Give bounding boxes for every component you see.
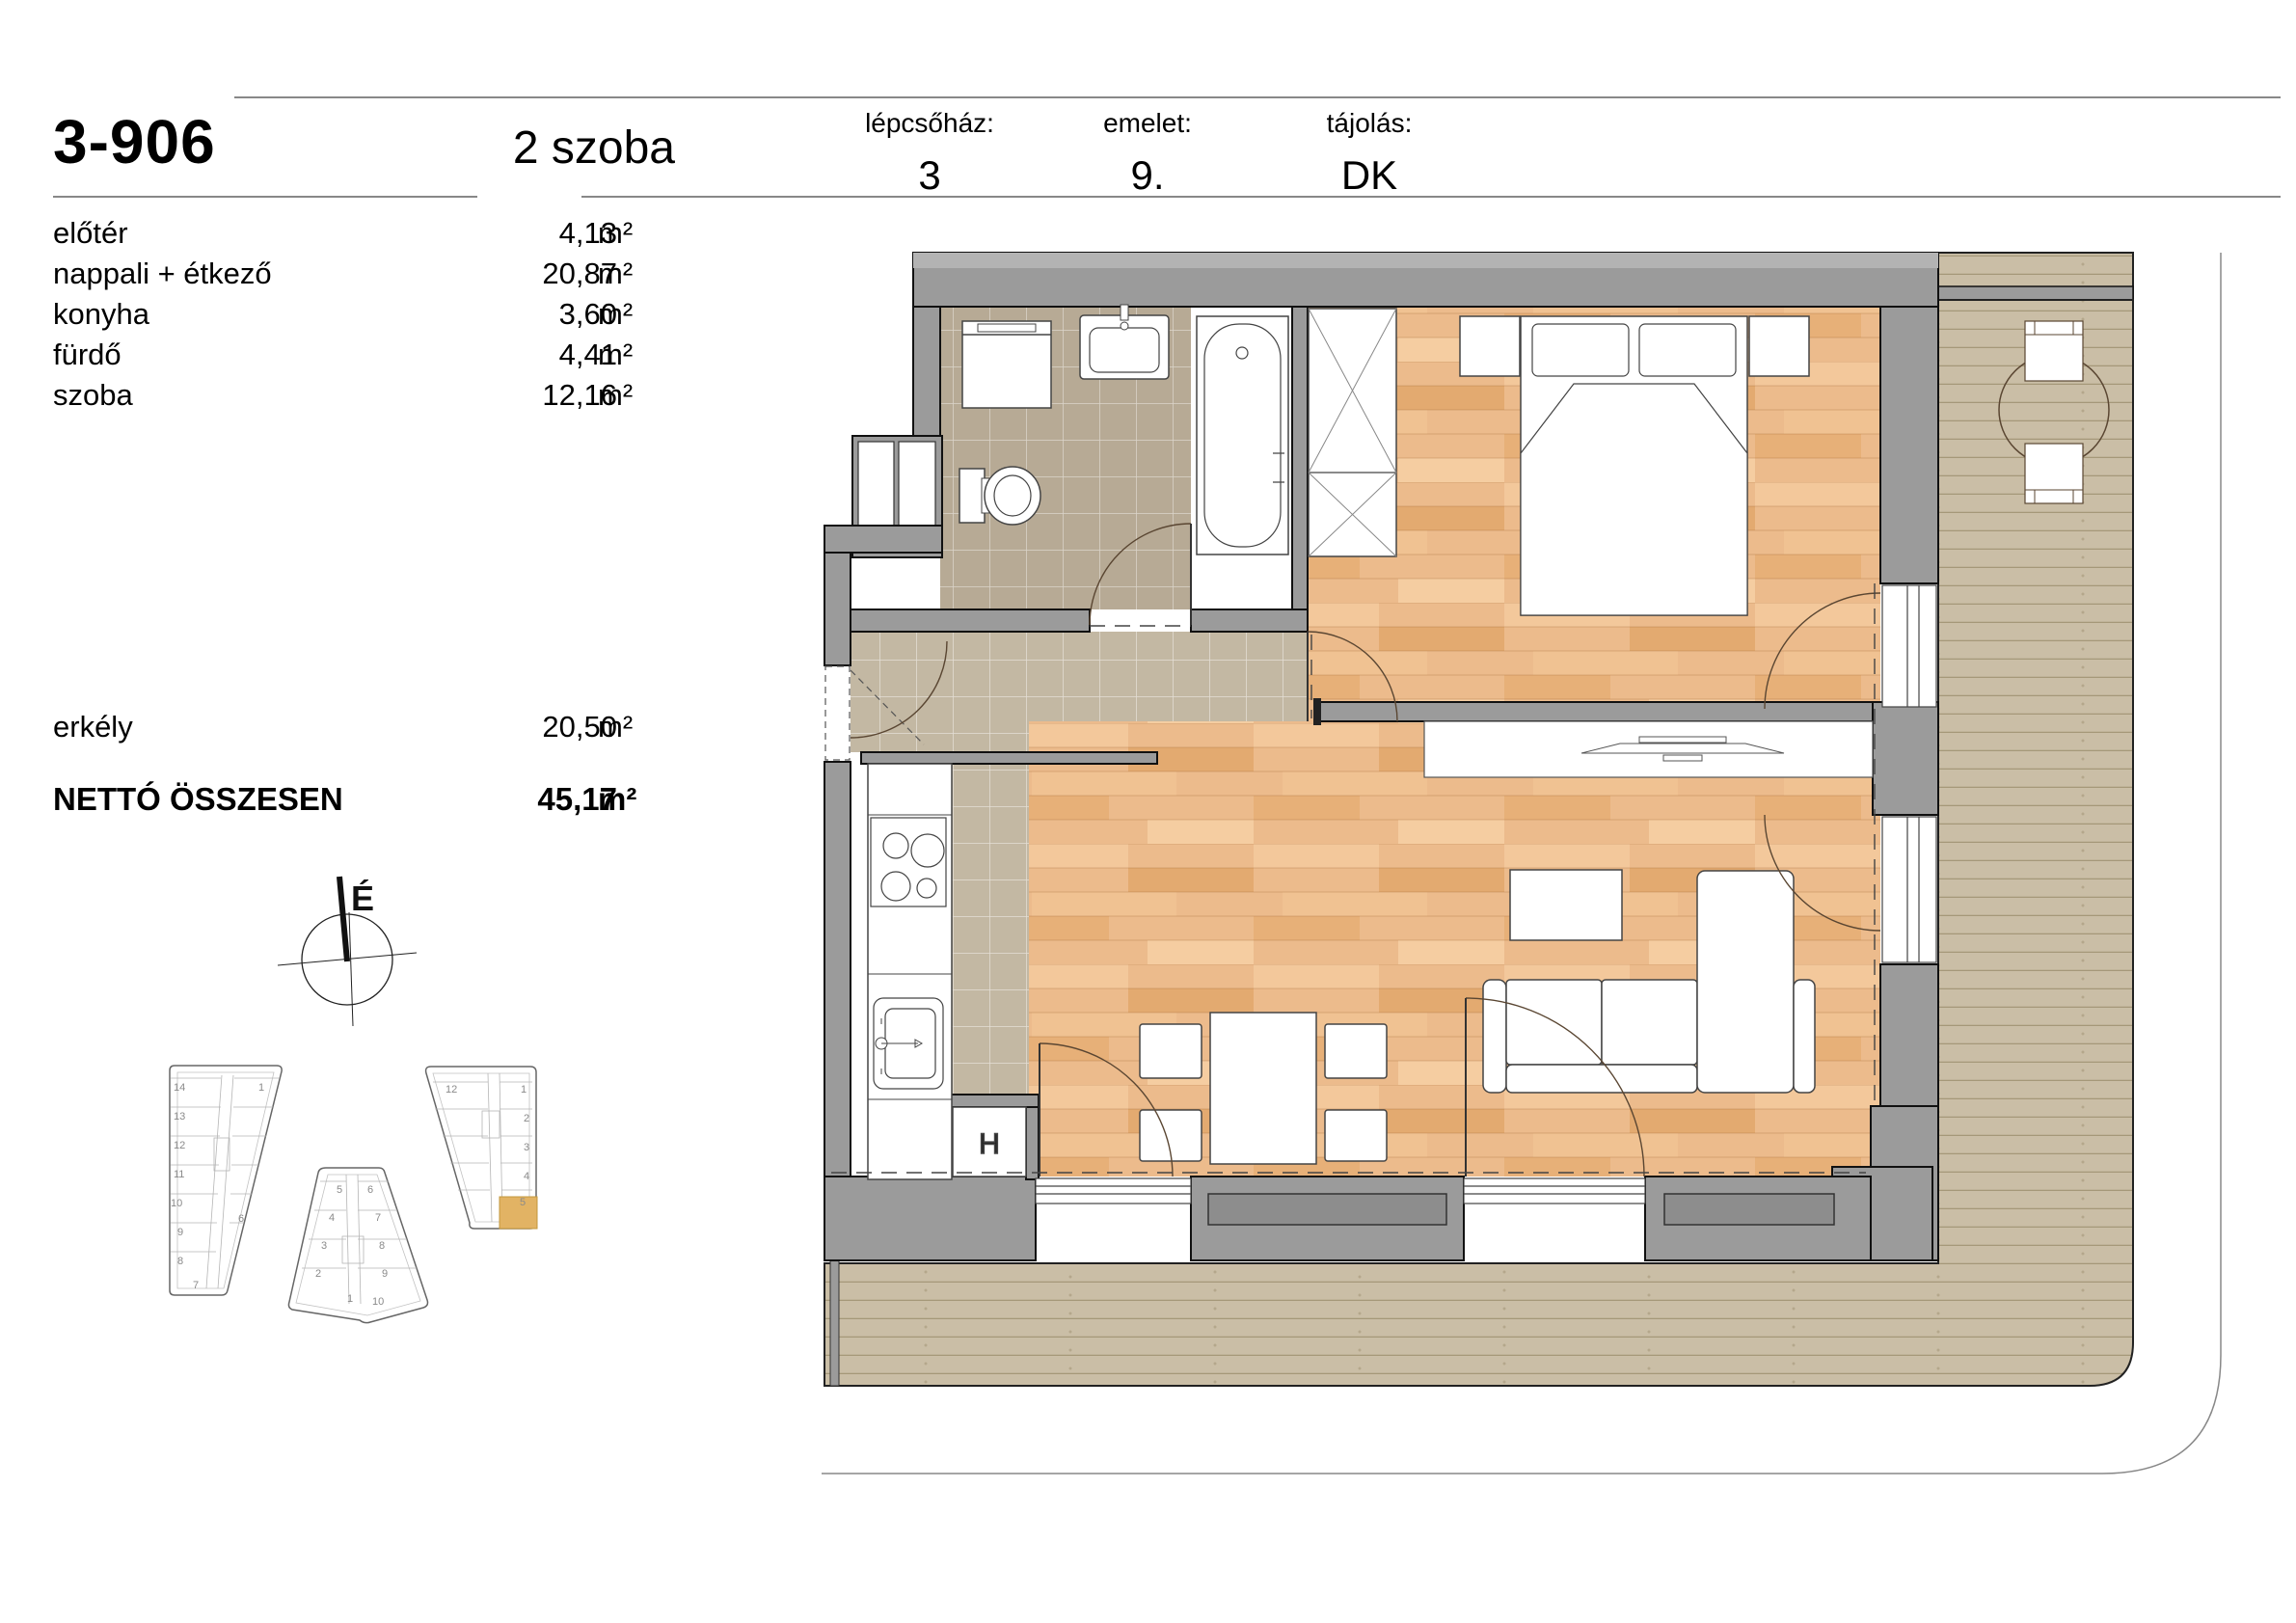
site-unit-number: 10 xyxy=(372,1296,384,1308)
wall-step xyxy=(824,526,942,553)
wall-bath-bedroom xyxy=(1292,307,1308,609)
wall-bath-bottom-left xyxy=(851,609,1090,632)
balcony-parapet-wall xyxy=(1938,286,2133,300)
site-unit-number: 12 xyxy=(446,1084,457,1096)
site-unit-number: 12 xyxy=(174,1140,185,1151)
tv-sideboard xyxy=(1424,721,1873,777)
toilet xyxy=(959,467,1040,525)
bedroom-balcony-door-sill xyxy=(1882,585,1936,707)
site-plan: 14 13 12 11 10 9 8 7 1 6 xyxy=(170,1066,537,1323)
site-unit-number: 3 xyxy=(321,1240,327,1252)
floor-plan-drawing: H É xyxy=(0,0,2296,1623)
wall-endcap xyxy=(1313,698,1321,725)
wall-right-lower xyxy=(1880,964,1938,1106)
dining-chair xyxy=(1325,1024,1387,1078)
site-unit-number: 1 xyxy=(521,1084,527,1096)
site-unit-number: 1 xyxy=(258,1082,264,1094)
washing-machine xyxy=(962,321,1051,408)
sofa-seat xyxy=(1506,980,1602,1065)
coffee-table xyxy=(1510,870,1622,940)
site-unit-number: 7 xyxy=(375,1212,381,1224)
dining-chair xyxy=(1140,1024,1202,1078)
wall-left-upper xyxy=(824,553,851,665)
wall-bottom-1 xyxy=(824,1177,1036,1260)
wall-bath-left xyxy=(913,307,940,444)
site-unit-number: 13 xyxy=(174,1111,185,1123)
dining-chair xyxy=(1325,1110,1387,1161)
site-unit-number: 2 xyxy=(315,1268,321,1280)
site-unit-number: 11 xyxy=(174,1169,184,1180)
sofa-armrest xyxy=(1483,980,1506,1093)
site-unit-number: 1 xyxy=(347,1293,353,1305)
site-unit-number: 10 xyxy=(171,1198,182,1209)
entry-door xyxy=(825,666,850,760)
bathtub xyxy=(1197,316,1288,555)
nightstand xyxy=(1749,316,1809,376)
site-unit-number: 5 xyxy=(337,1184,342,1196)
site-building-a: 14 13 12 11 10 9 8 7 1 6 xyxy=(170,1066,282,1295)
site-unit-number: 8 xyxy=(379,1240,385,1252)
tv-screen xyxy=(1639,737,1726,743)
wall-kitchen-top xyxy=(861,752,1157,764)
wall-bottom-3-inner xyxy=(1664,1194,1834,1225)
duvet xyxy=(1521,384,1747,615)
sofa-seat xyxy=(1602,980,1697,1065)
site-building-c: 12 1 2 3 4 5 xyxy=(426,1067,537,1229)
balcony-door-sill xyxy=(1464,1178,1645,1204)
site-building-b: 5 6 4 7 3 8 2 9 1 10 xyxy=(288,1168,427,1323)
site-unit-number: 9 xyxy=(177,1227,183,1238)
cooktop xyxy=(871,818,946,906)
compass-needle xyxy=(339,877,347,961)
living-balcony-door-sill xyxy=(1882,817,1936,962)
balcony-chair xyxy=(2025,444,2083,503)
wall-bath-bottom-right xyxy=(1191,609,1308,632)
highlighted-unit xyxy=(500,1197,537,1229)
tv-stand xyxy=(1663,755,1702,761)
deck-edge-strip xyxy=(830,1251,839,1386)
kitchen-floor xyxy=(952,764,1029,1095)
washbasin xyxy=(1080,305,1169,379)
site-unit-number: 6 xyxy=(238,1213,244,1225)
wall-bottom-2-inner xyxy=(1208,1194,1446,1225)
compass-north-label: É xyxy=(351,879,374,918)
wall-storage-top xyxy=(950,1095,1039,1107)
site-unit-number: 4 xyxy=(329,1212,335,1224)
wardrobe xyxy=(1309,309,1396,556)
double-bed xyxy=(1521,316,1747,615)
site-unit-number: 8 xyxy=(177,1256,183,1267)
storage-room: H xyxy=(953,1107,1026,1177)
site-unit-number: 14 xyxy=(174,1082,185,1094)
floorplan-sheet: 3-906 2 szoba előtér 4,13 m² nappali + é… xyxy=(0,0,2296,1623)
sofa-armrest xyxy=(1794,980,1815,1093)
wall-left-lower xyxy=(824,762,851,1178)
site-unit-number: 4 xyxy=(524,1171,529,1182)
wall-top-outer xyxy=(913,253,1938,268)
balcony-door-sill xyxy=(1036,1178,1191,1204)
site-unit-number: 6 xyxy=(367,1184,373,1196)
compass: É xyxy=(278,877,417,1026)
pillow xyxy=(1639,324,1736,376)
wall-right-pier xyxy=(1873,702,1938,815)
kitchen-sink xyxy=(874,998,943,1089)
site-unit-number: 7 xyxy=(193,1280,199,1291)
site-unit-number: 2 xyxy=(524,1113,529,1124)
site-unit-number: 9 xyxy=(382,1268,388,1280)
nightstand xyxy=(1460,316,1520,376)
sofa-back xyxy=(1506,1065,1697,1093)
wall-storage-right xyxy=(1026,1107,1039,1179)
sofa-chaise xyxy=(1697,871,1794,1093)
site-unit-number: 3 xyxy=(524,1142,529,1153)
storage-label: H xyxy=(979,1128,1000,1160)
wall-right-upper xyxy=(1880,307,1938,583)
pillow xyxy=(1532,324,1629,376)
dining-table xyxy=(1210,1013,1316,1164)
wall-bedroom-living xyxy=(1319,702,1873,721)
balcony-chair xyxy=(2025,321,2083,381)
site-unit-number: 5 xyxy=(520,1197,526,1208)
